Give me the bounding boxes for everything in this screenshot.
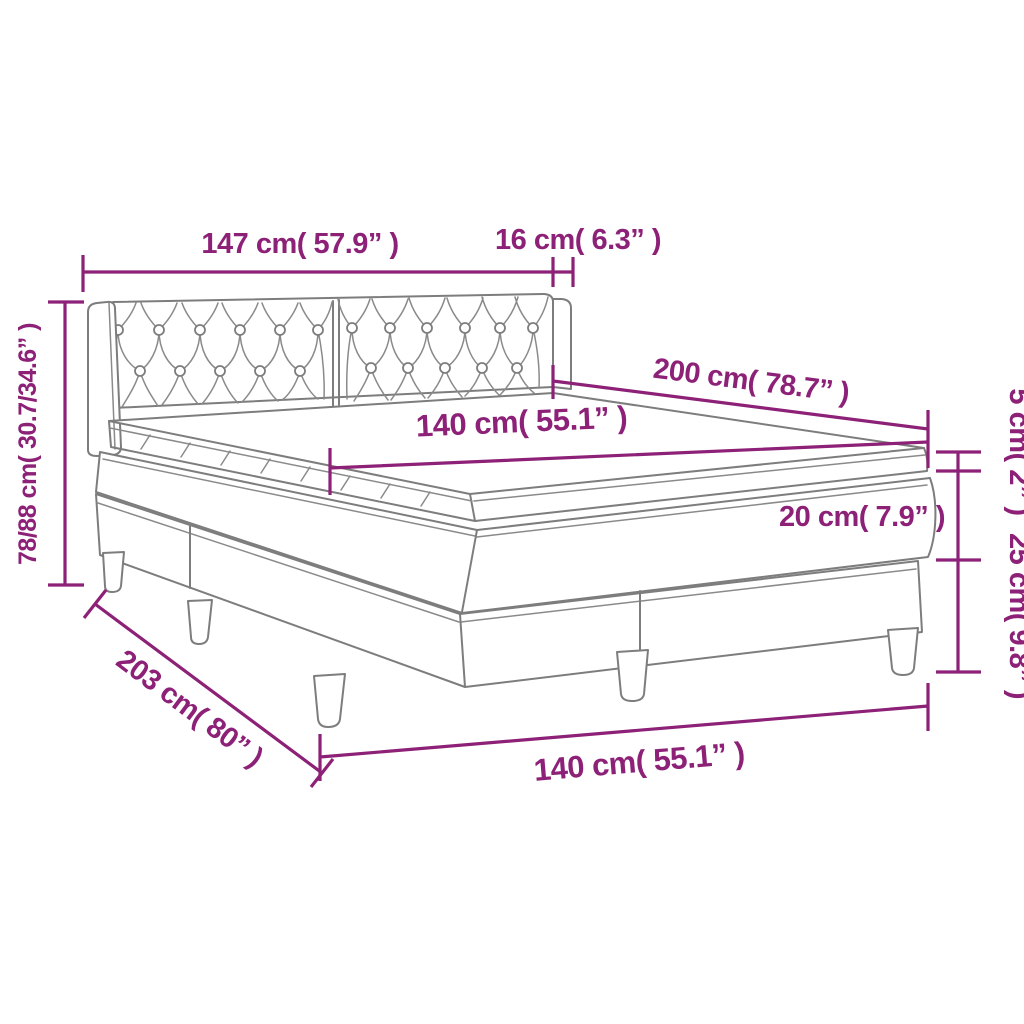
label-headboard-width: 147 cm( 57.9” ) xyxy=(201,228,398,260)
leg xyxy=(103,552,124,592)
dim-line-total-height xyxy=(48,302,84,585)
label-mattress-width-bottom: 140 cm( 55.1” ) xyxy=(532,735,746,788)
leg xyxy=(188,600,212,644)
headboard-wing xyxy=(88,302,121,456)
dim-line-right-heights xyxy=(936,452,981,672)
bed-diagram-canvas: 147 cm( 57.9” ) 16 cm( 6.3” ) 78/88 cm( … xyxy=(0,0,1024,1024)
label-bed-length: 200 cm( 78.7” ) xyxy=(651,353,851,410)
label-headboard-depth: 16 cm( 6.3” ) xyxy=(495,224,661,256)
headboard-side-face xyxy=(553,299,571,389)
label-total-height: 78/88 cm( 30.7/34.6” ) xyxy=(14,323,42,565)
label-base-height: 25 cm( 9.8” ) xyxy=(1003,533,1024,699)
label-total-length: 203 cm( 80” ) xyxy=(110,644,269,774)
leg xyxy=(888,628,918,675)
leg xyxy=(314,674,345,727)
dimension-diagram: 147 cm( 57.9” ) 16 cm( 6.3” ) 78/88 cm( … xyxy=(0,0,1024,1024)
label-topper-height: 5 cm( 2” ) xyxy=(1003,388,1024,515)
leg xyxy=(617,650,648,701)
dim-line-headboard-width xyxy=(83,255,573,292)
label-mattress-height: 20 cm( 7.9” ) xyxy=(779,501,945,533)
